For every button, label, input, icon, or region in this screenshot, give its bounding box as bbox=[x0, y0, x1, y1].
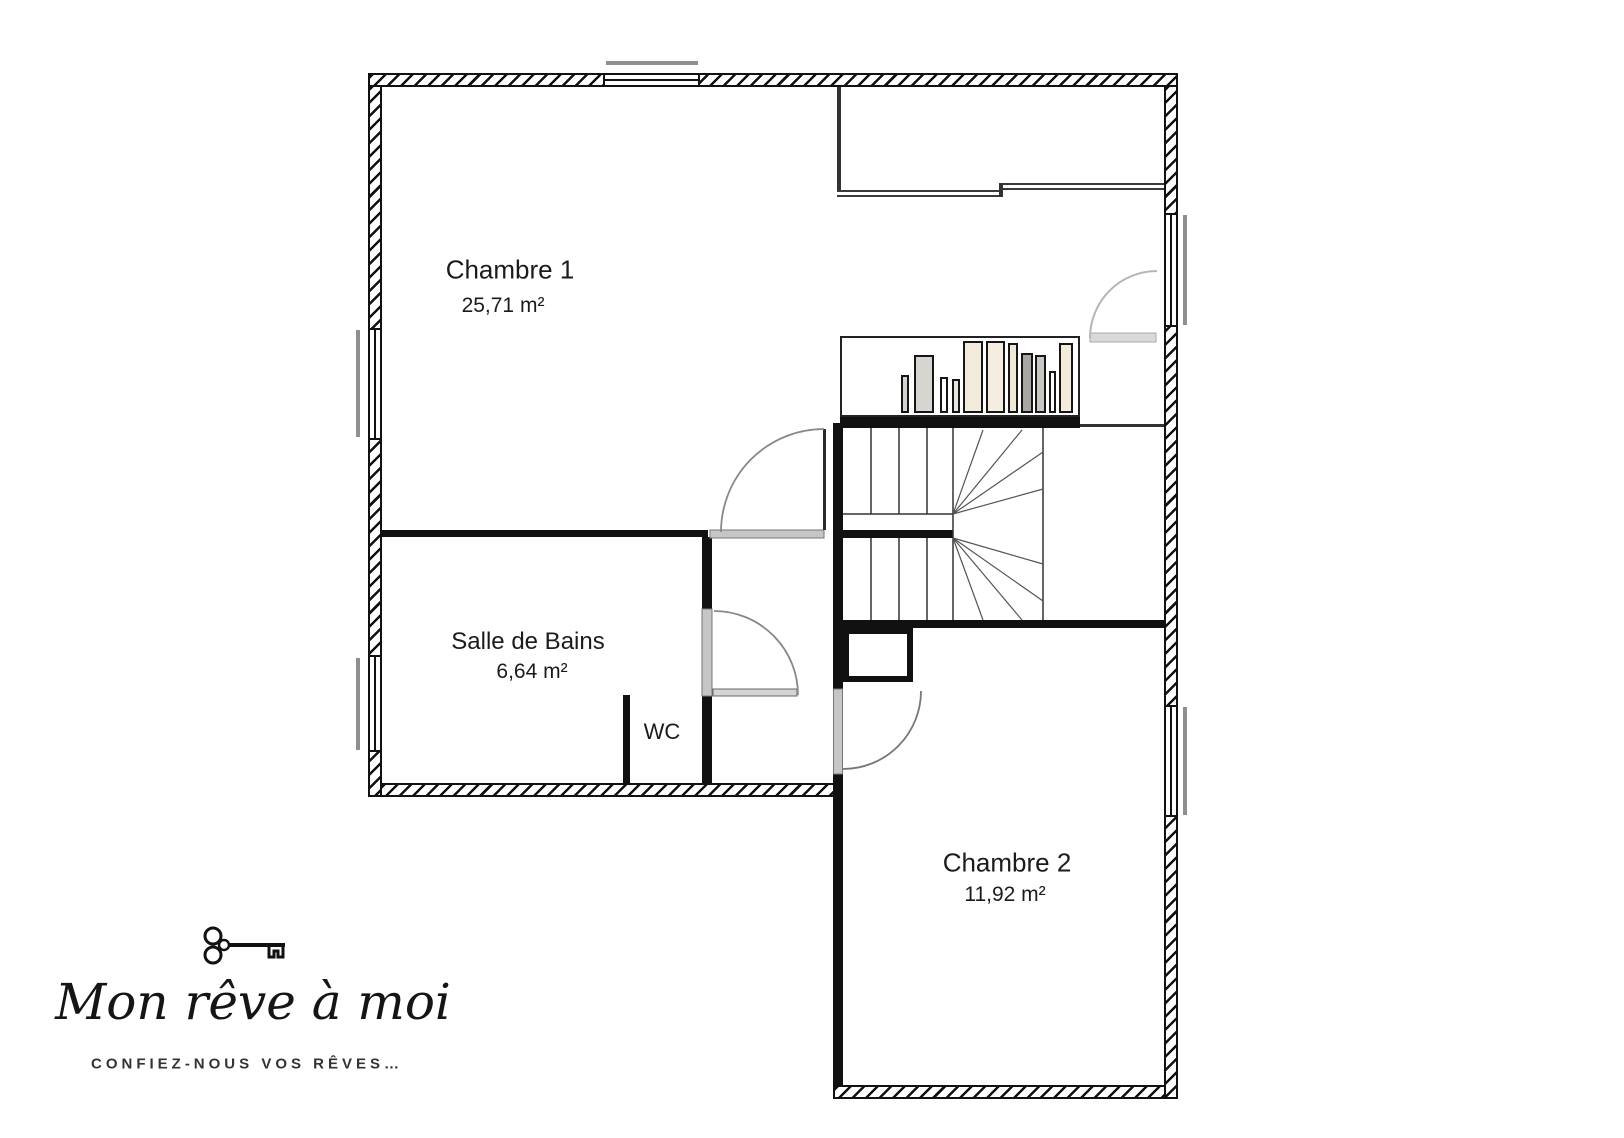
door-threshold-bathroom bbox=[702, 609, 712, 696]
room-label-wc: WC bbox=[644, 719, 681, 745]
brand-tagline: CONFIEZ-NOUS VOS RÊVES… bbox=[91, 1056, 403, 1073]
page: Chambre 1 25,71 m² Salle de Bains 6,64 m… bbox=[0, 0, 1624, 1138]
room-area-salle-de-bains: 6,64 m² bbox=[496, 660, 567, 684]
room-label-chambre2: Chambre 2 bbox=[943, 848, 1072, 879]
door-swing-bathroom bbox=[714, 611, 798, 695]
staircase bbox=[843, 428, 1043, 620]
brand-name: Mon rêve à moi bbox=[55, 973, 451, 1031]
stair-winders bbox=[953, 430, 1043, 620]
door-threshold-chambre2 bbox=[834, 689, 843, 774]
winder-tread bbox=[953, 538, 983, 620]
door-swing-stairs bbox=[1090, 271, 1157, 338]
winder-tread bbox=[953, 430, 983, 514]
winder-tread bbox=[953, 538, 1043, 564]
room-area-chambre2: 11,92 m² bbox=[964, 883, 1045, 907]
winder-tread bbox=[953, 430, 1022, 514]
winder-tread bbox=[953, 489, 1043, 514]
door-leaf-stairs bbox=[1090, 333, 1156, 342]
room-label-salle-de-bains: Salle de Bains bbox=[451, 628, 604, 656]
door-swing-chambre1 bbox=[721, 429, 824, 532]
door-swing-chambre2 bbox=[843, 691, 921, 769]
room-area-chambre1: 25,71 m² bbox=[462, 294, 545, 318]
key-icon bbox=[198, 922, 294, 972]
winder-tread bbox=[953, 452, 1043, 514]
room-label-chambre1: Chambre 1 bbox=[446, 255, 575, 286]
door-threshold-chambre1 bbox=[710, 530, 824, 538]
door-leaf-bathroom bbox=[713, 689, 797, 696]
doors bbox=[702, 271, 1157, 774]
